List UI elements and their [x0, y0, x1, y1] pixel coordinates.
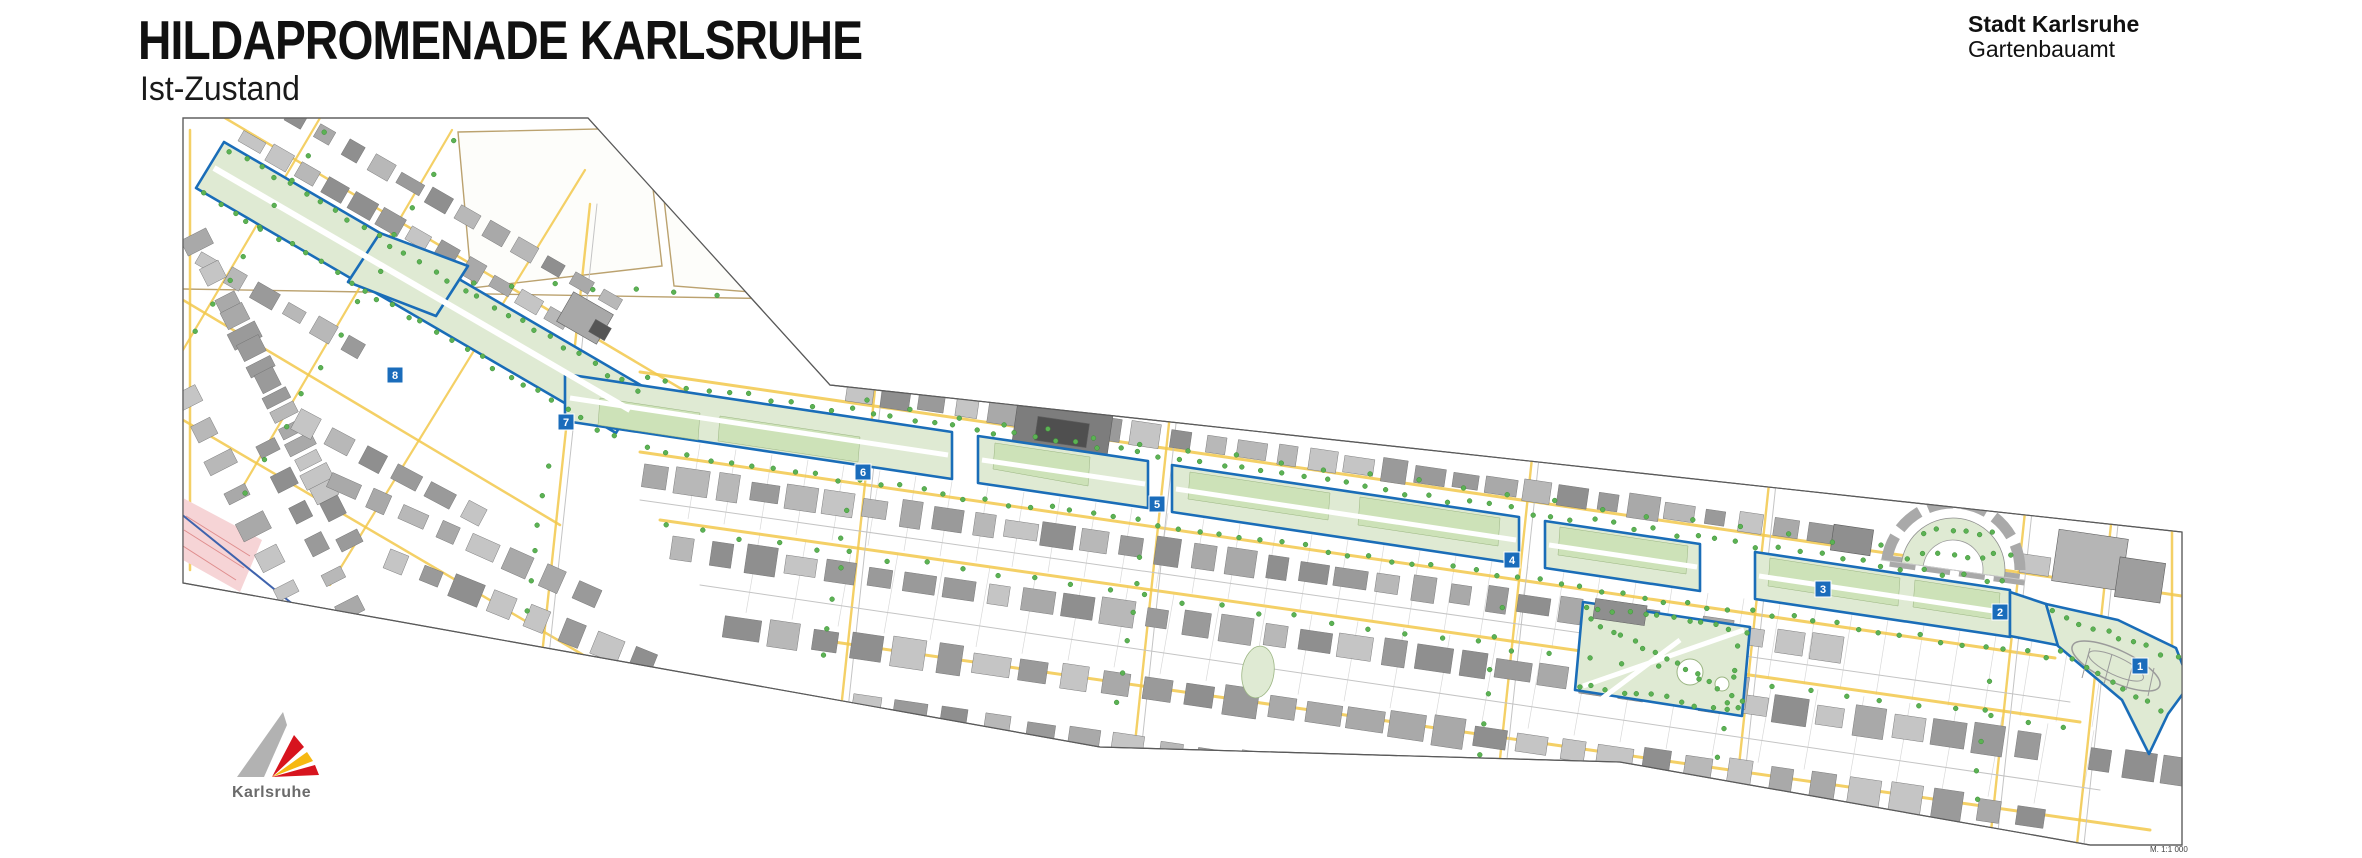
section-marker-3: 3: [1815, 581, 1831, 597]
svg-text:2: 2: [1997, 607, 2003, 619]
city-plan-map: 8 7 6 5 4 3 2 1 M. 1:1 000 Karlsru: [0, 0, 2362, 858]
svg-text:1: 1: [2137, 661, 2143, 673]
svg-text:3: 3: [1820, 584, 1826, 596]
svg-text:4: 4: [1509, 555, 1516, 567]
svg-text:5: 5: [1154, 499, 1160, 511]
section-marker-2: 2: [1992, 604, 2008, 620]
scale-label: M. 1:1 000: [2150, 845, 2188, 854]
section-marker-6: 6: [855, 464, 871, 480]
section-marker-4: 4: [1504, 552, 1520, 568]
section-marker-7: 7: [558, 414, 574, 430]
logo-label: Karlsruhe: [232, 784, 311, 801]
section-marker-8: 8: [387, 367, 403, 383]
svg-text:8: 8: [392, 370, 398, 382]
section-marker-1: 1: [2132, 658, 2148, 674]
karlsruhe-logo: Karlsruhe: [232, 712, 319, 801]
svg-text:7: 7: [563, 417, 569, 429]
svg-text:6: 6: [860, 467, 866, 479]
section-marker-5: 5: [1149, 496, 1165, 512]
